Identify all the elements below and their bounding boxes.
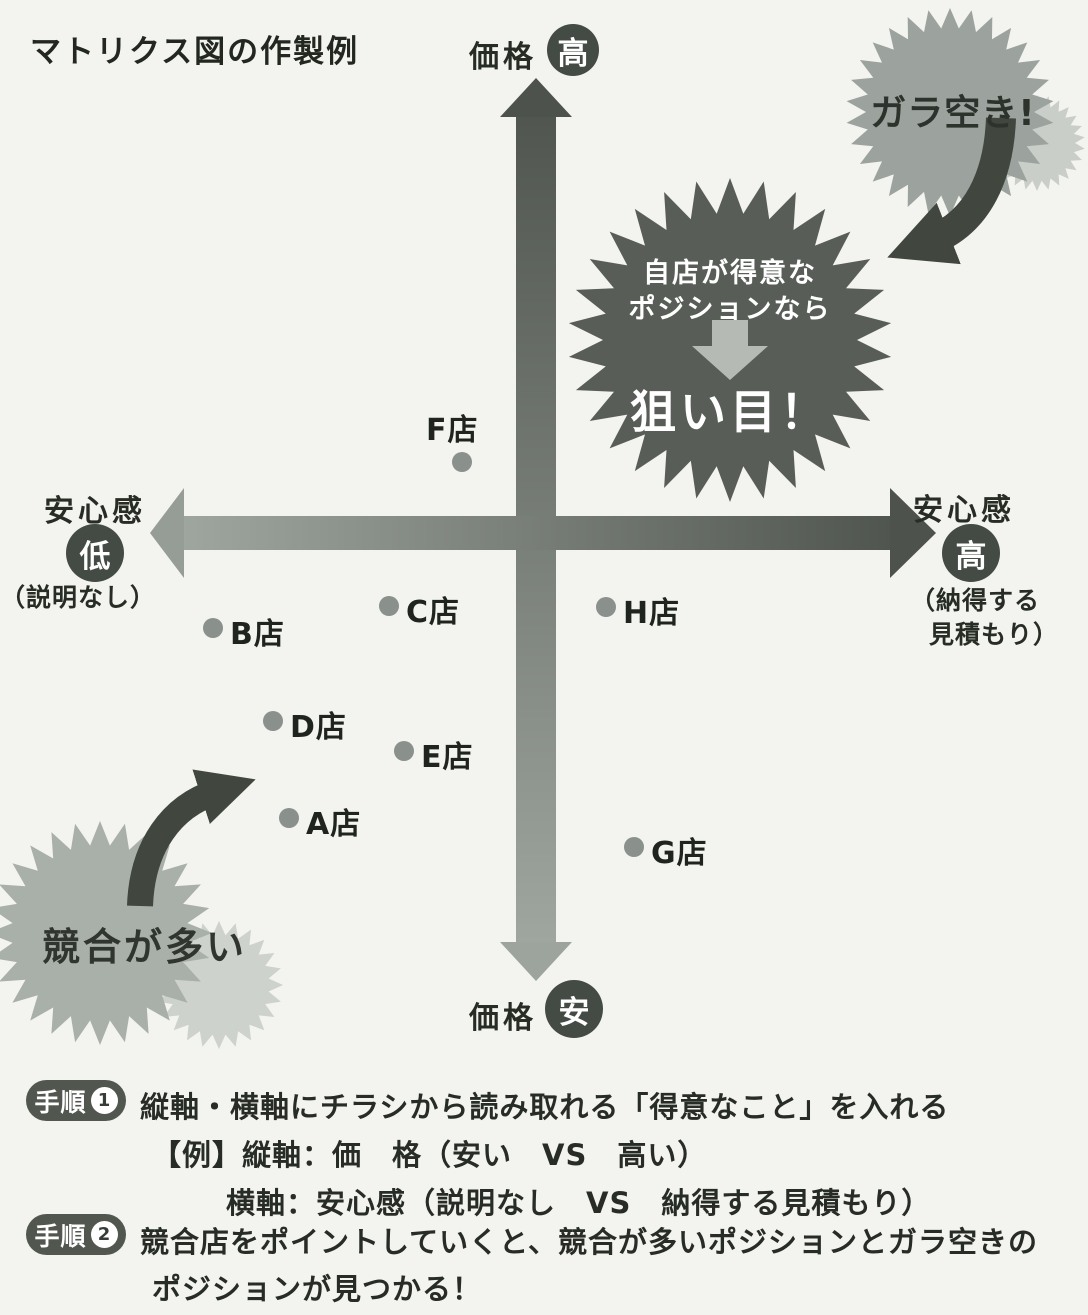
step2-pill: 手順 2 xyxy=(26,1214,126,1255)
point-dot-F店 xyxy=(452,452,472,472)
point-dot-G店 xyxy=(624,837,644,857)
point-label-A店: A店 xyxy=(306,799,361,843)
step2-number-icon: 2 xyxy=(91,1221,118,1248)
point-label-G店: G店 xyxy=(651,828,708,872)
points-layer: F店B店C店H店D店E店A店G店 xyxy=(0,0,1088,1070)
point-label-D店: D店 xyxy=(290,702,347,746)
step1-text: 縦軸・横軸にチラシから読み取れる「得意なこと」を入れる xyxy=(140,1084,949,1126)
point-dot-D店 xyxy=(263,711,283,731)
point-dot-B店 xyxy=(203,618,223,638)
point-label-B店: B店 xyxy=(230,609,285,653)
step1-number-icon: 1 xyxy=(91,1087,118,1114)
point-label-C店: C店 xyxy=(406,587,460,631)
point-label-E店: E店 xyxy=(421,732,474,776)
step1-pill: 手順 1 xyxy=(26,1080,126,1121)
book-page: マトリクス図の作製例 価格 高 価格 安 安心感 低 （説明なし） 安心感 高 … xyxy=(0,0,1088,1315)
point-dot-A店 xyxy=(279,808,299,828)
point-dot-C店 xyxy=(379,596,399,616)
step1-pill-label: 手順 xyxy=(34,1083,86,1119)
step2-text-line1: 競合店をポイントしていくと、競合が多いポジションとガラ空きの xyxy=(140,1219,1038,1261)
step2-text-line2: ポジションが見つかる！ xyxy=(152,1266,482,1308)
point-label-H店: H店 xyxy=(623,588,680,632)
step2-pill-label: 手順 xyxy=(34,1217,86,1253)
point-label-F店: F店 xyxy=(426,405,479,449)
step1-example-line2: 横軸：安心感（説明なし VS 納得する見積もり） xyxy=(226,1180,931,1222)
point-dot-H店 xyxy=(596,597,616,617)
point-dot-E店 xyxy=(394,741,414,761)
step1-example-line1: 【例】縦軸：価 格（安い VS 高い） xyxy=(152,1132,707,1174)
